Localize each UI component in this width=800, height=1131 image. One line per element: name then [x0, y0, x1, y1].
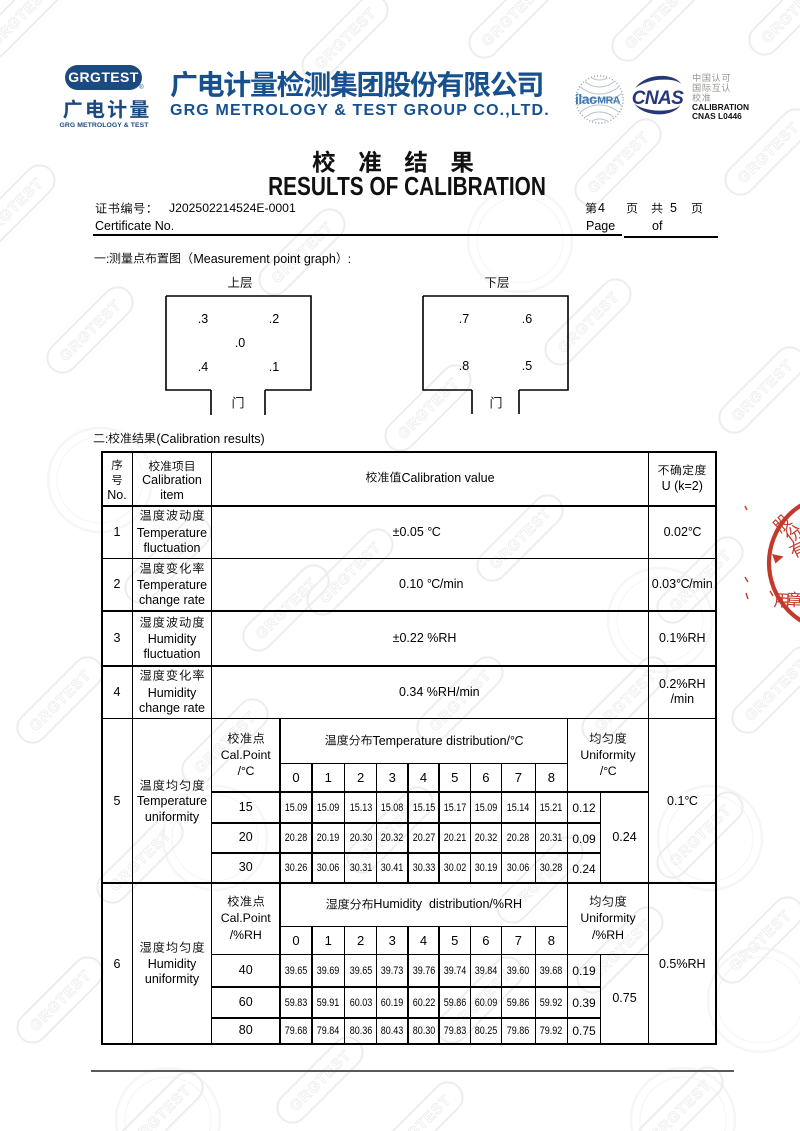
- svg-text:GRGTEST: GRGTEST: [735, 119, 800, 187]
- svg-text:GRGTEST: GRGTEST: [647, 1077, 715, 1131]
- svg-text:GRGTEST: GRGTEST: [0, 175, 47, 243]
- svg-text:GRGTEST: GRGTEST: [127, 1082, 195, 1131]
- svg-text:GRGTEST: GRGTEST: [479, 0, 547, 50]
- svg-text:CNAS: CNAS: [632, 88, 684, 109]
- svg-text:GRGTEST: GRGTEST: [387, 1092, 455, 1131]
- svg-text:-MRA: -MRA: [594, 95, 621, 107]
- svg-text:GRGTEST: GRGTEST: [622, 0, 690, 53]
- svg-text:GRGTEST: GRGTEST: [759, 0, 800, 47]
